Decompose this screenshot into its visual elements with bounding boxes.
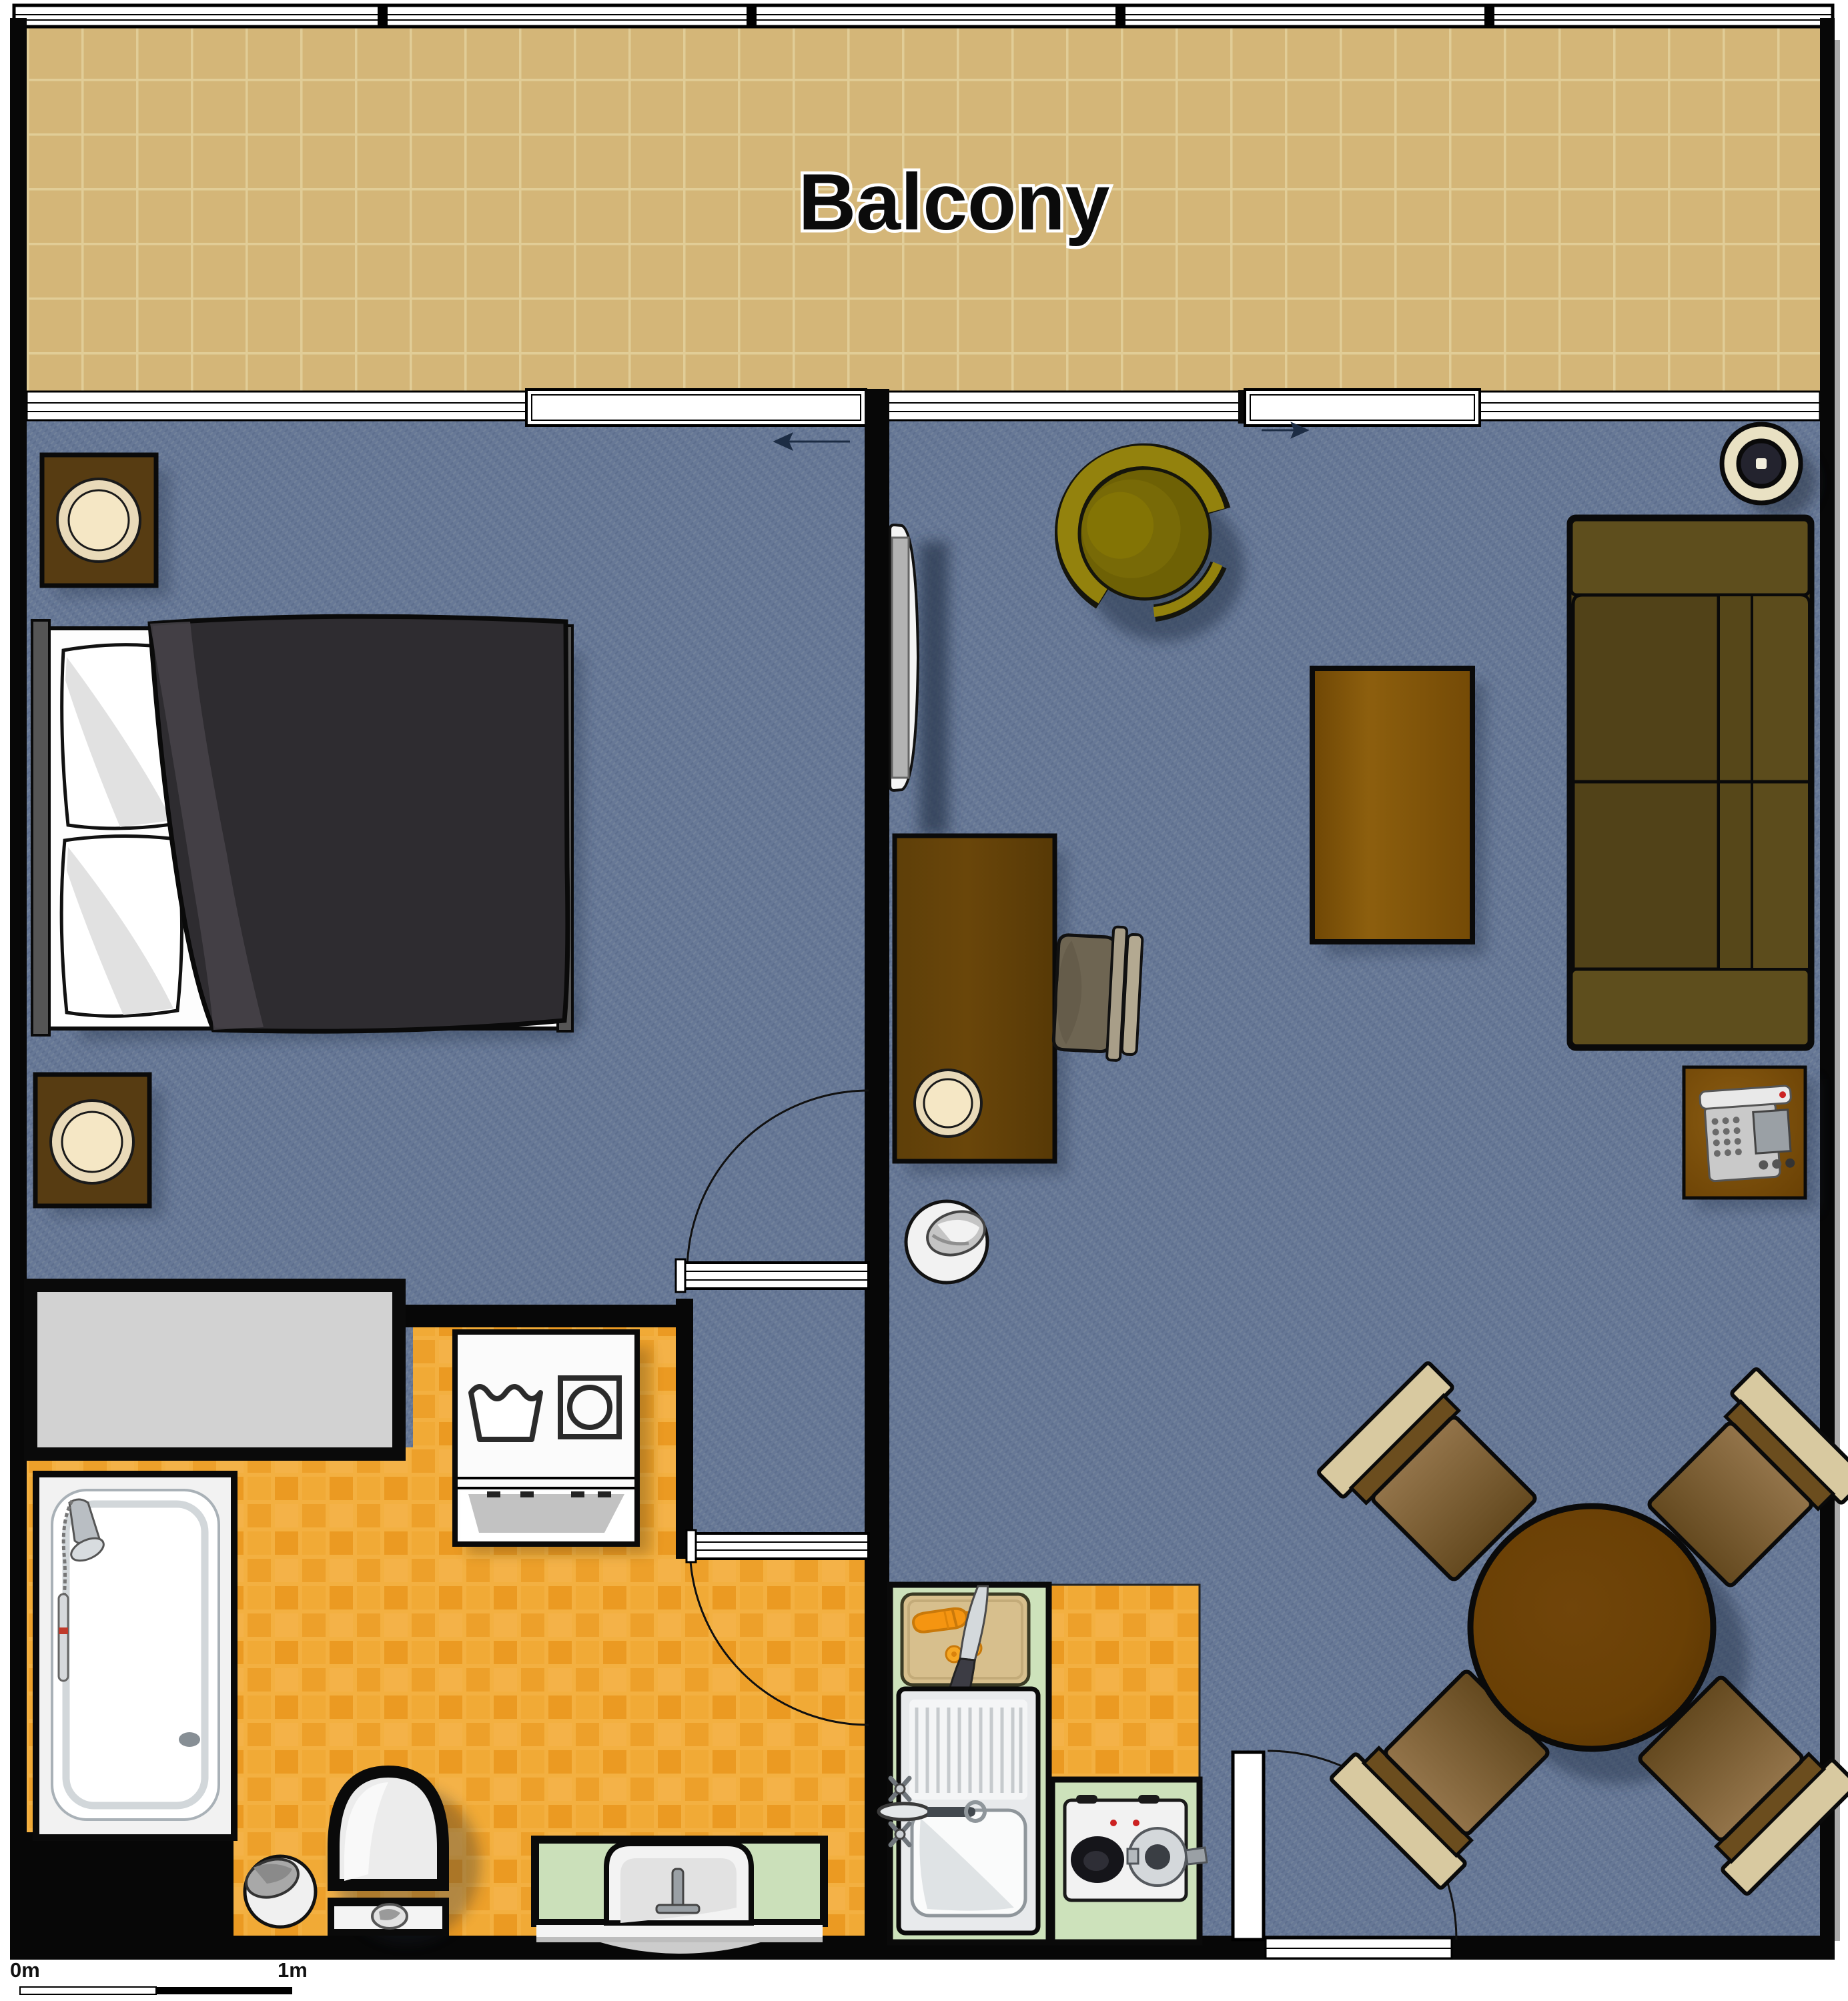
svg-text:1m: 1m [278, 1958, 308, 1982]
svg-text:0m: 0m [10, 1958, 40, 1982]
svg-text:Balcony: Balcony [799, 157, 1110, 247]
